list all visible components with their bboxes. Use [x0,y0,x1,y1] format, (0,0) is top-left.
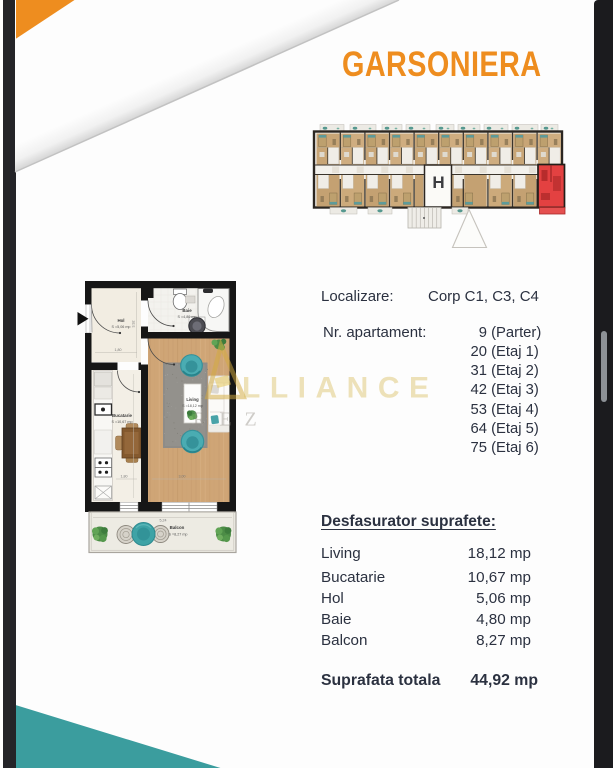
svg-text:1,80: 1,80 [121,475,128,479]
svg-text:LLIANCE: LLIANCE [242,372,435,405]
svg-text:S =8,27 mp: S =8,27 mp [169,533,188,537]
svg-text:Baie: Baie [182,308,192,313]
svg-text:Balcon: Balcon [170,525,185,530]
svg-text:5,24: 5,24 [160,519,167,523]
svg-text:3,00: 3,00 [179,475,186,479]
svg-text:S =5,06 mp: S =5,06 mp [112,325,131,329]
svg-text:S =4,80 mp: S =4,80 mp [178,315,197,319]
svg-text:Bucatarie: Bucatarie [112,413,133,418]
svg-text:1,80: 1,80 [115,348,122,352]
svg-text:3,92: 3,92 [132,321,136,328]
svg-text:S =10,67 mp: S =10,67 mp [111,420,132,424]
svg-text:Hol: Hol [117,318,124,323]
svg-text:H: H [432,173,444,192]
svg-text:REZ: REZ [193,409,270,431]
